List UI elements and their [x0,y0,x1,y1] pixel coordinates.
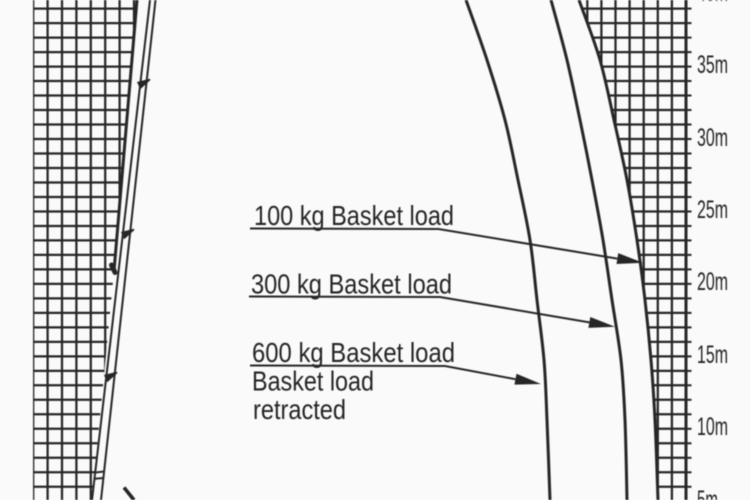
svg-text:25m: 25m [697,196,728,224]
svg-text:retracted: retracted [253,394,346,425]
svg-text:35m: 35m [697,51,728,79]
svg-text:300 kg Basket load: 300 kg Basket load [251,269,452,300]
svg-text:40m: 40m [697,0,728,7]
svg-text:20m: 20m [697,268,728,296]
svg-text:15m: 15m [697,341,728,369]
svg-text:100 kg Basket load: 100 kg Basket load [254,200,454,231]
svg-text:30m: 30m [697,124,728,152]
svg-text:10m: 10m [697,413,728,441]
svg-text:Basket load: Basket load [252,366,374,397]
svg-text:5m: 5m [697,486,718,500]
svg-text:600 kg Basket load: 600 kg Basket load [252,337,455,368]
